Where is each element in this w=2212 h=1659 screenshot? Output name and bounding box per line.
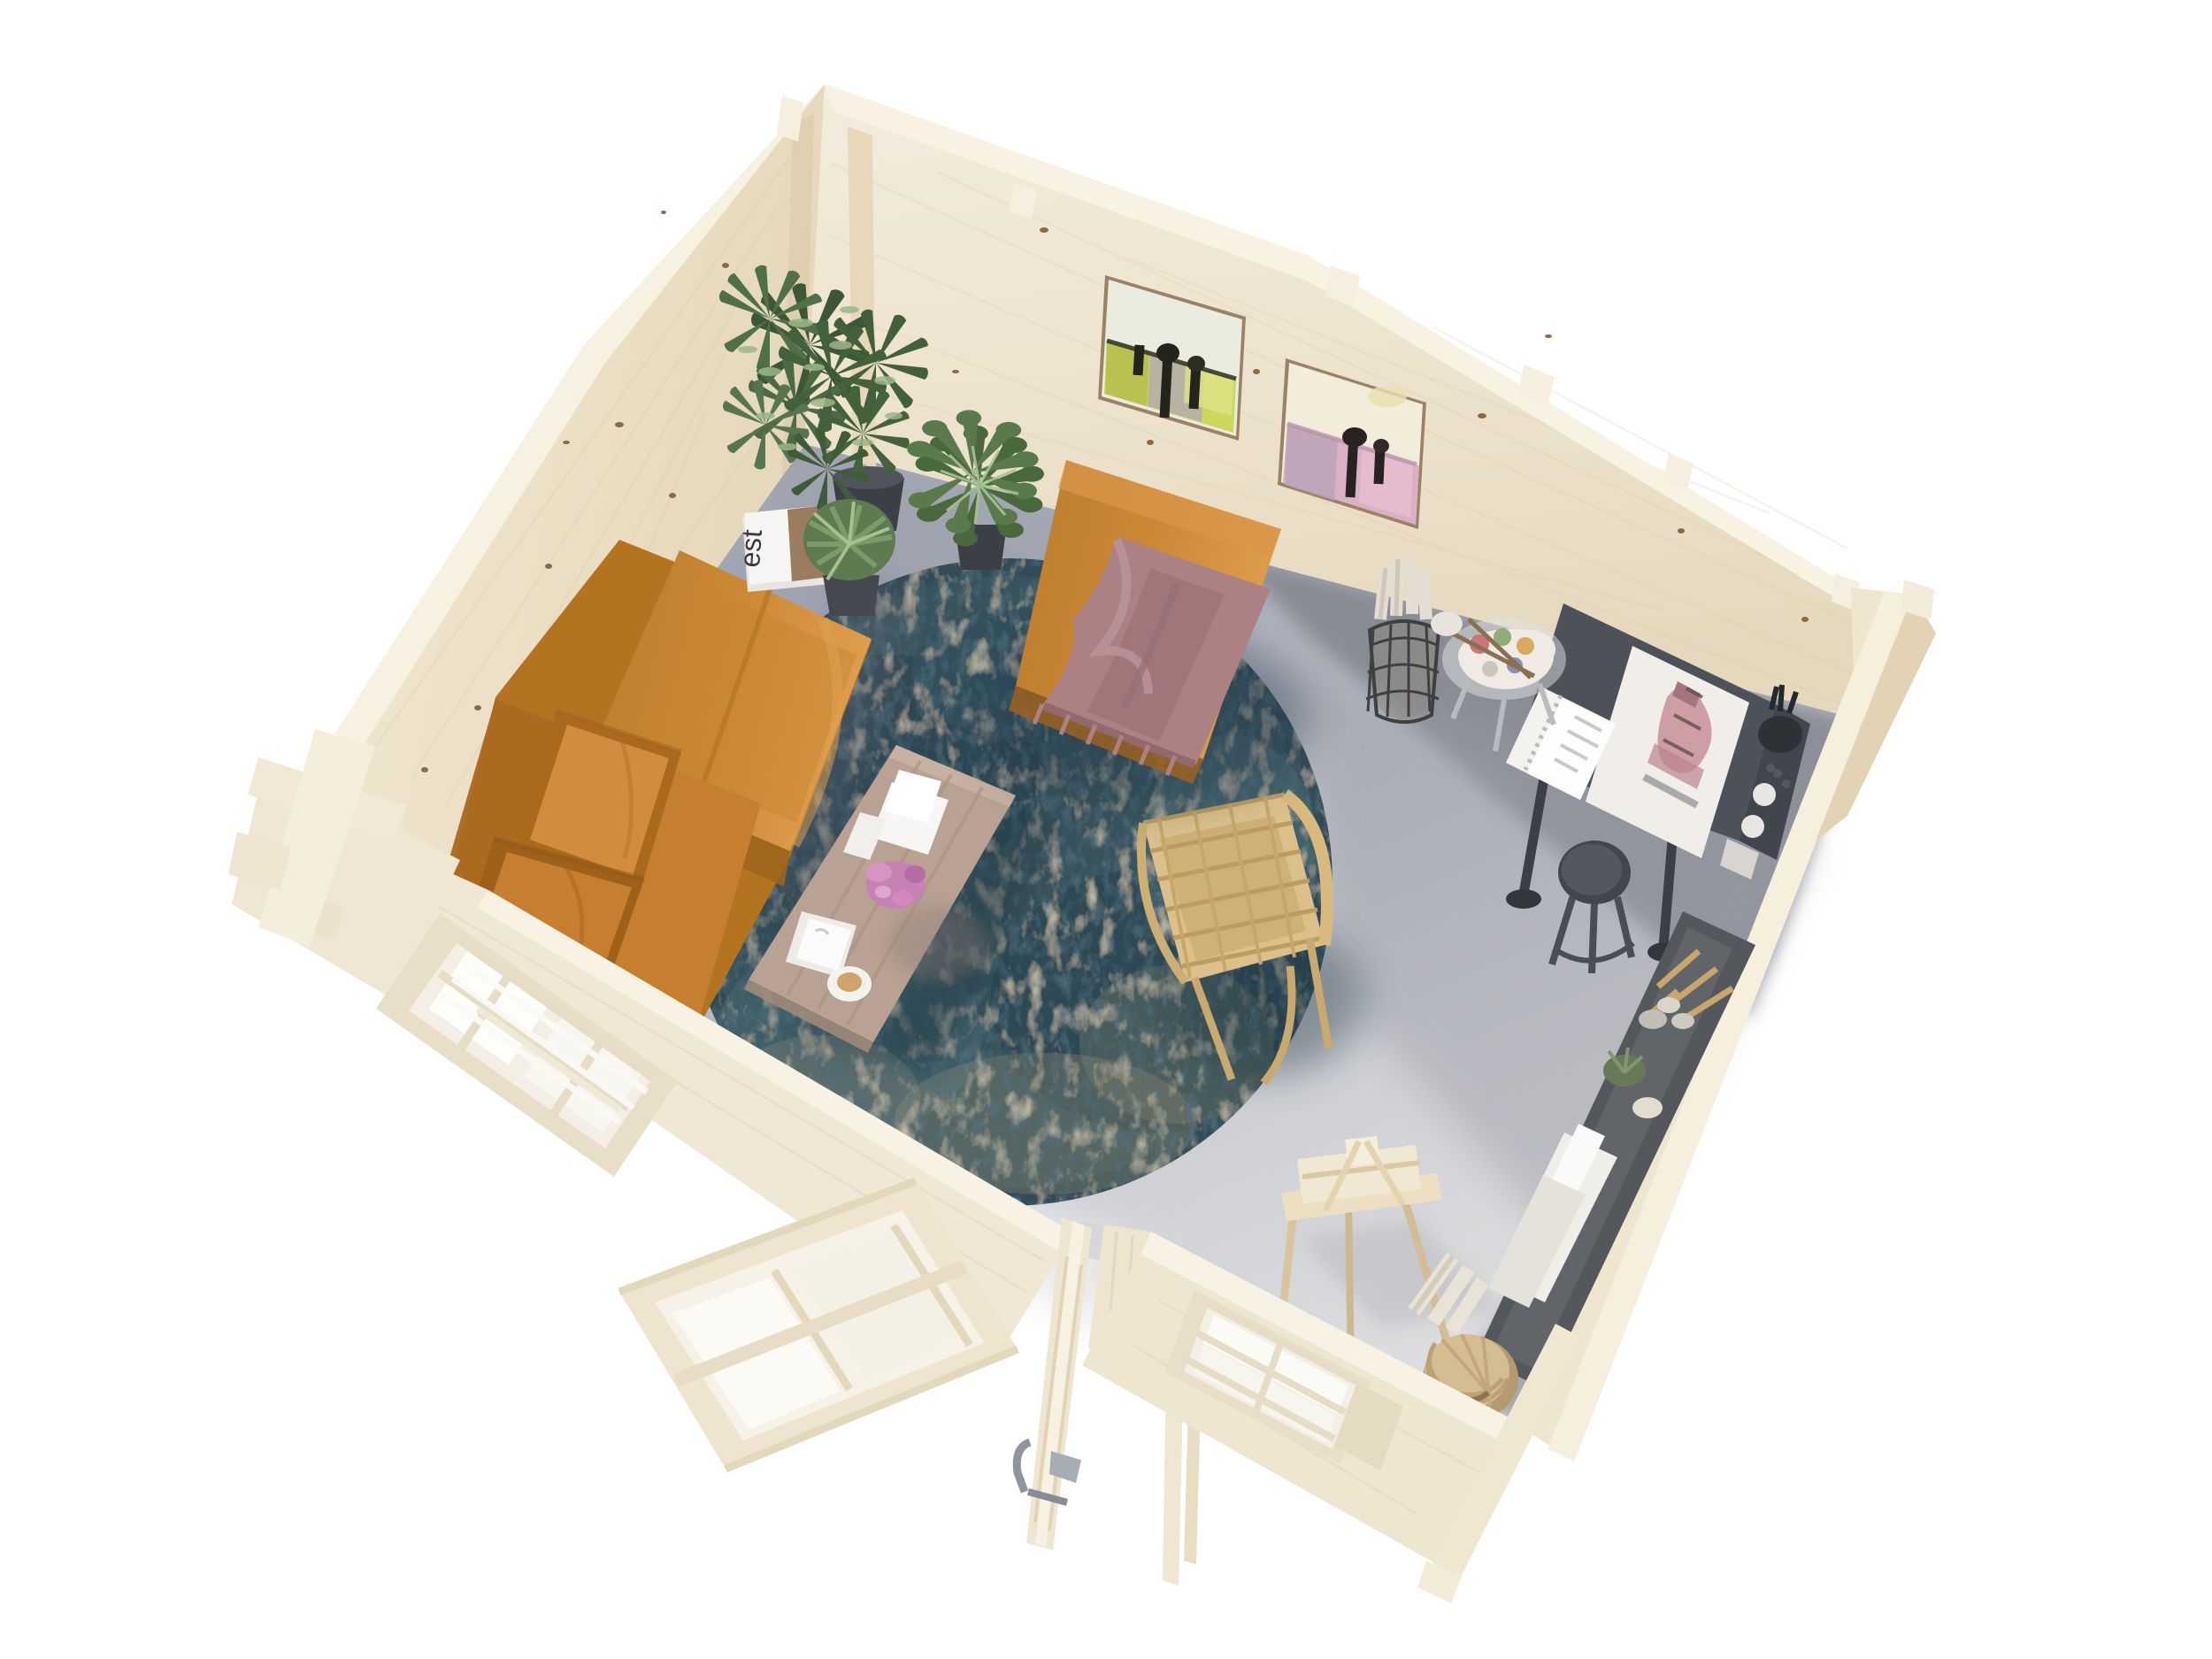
svg-text:est: est [733, 528, 768, 568]
